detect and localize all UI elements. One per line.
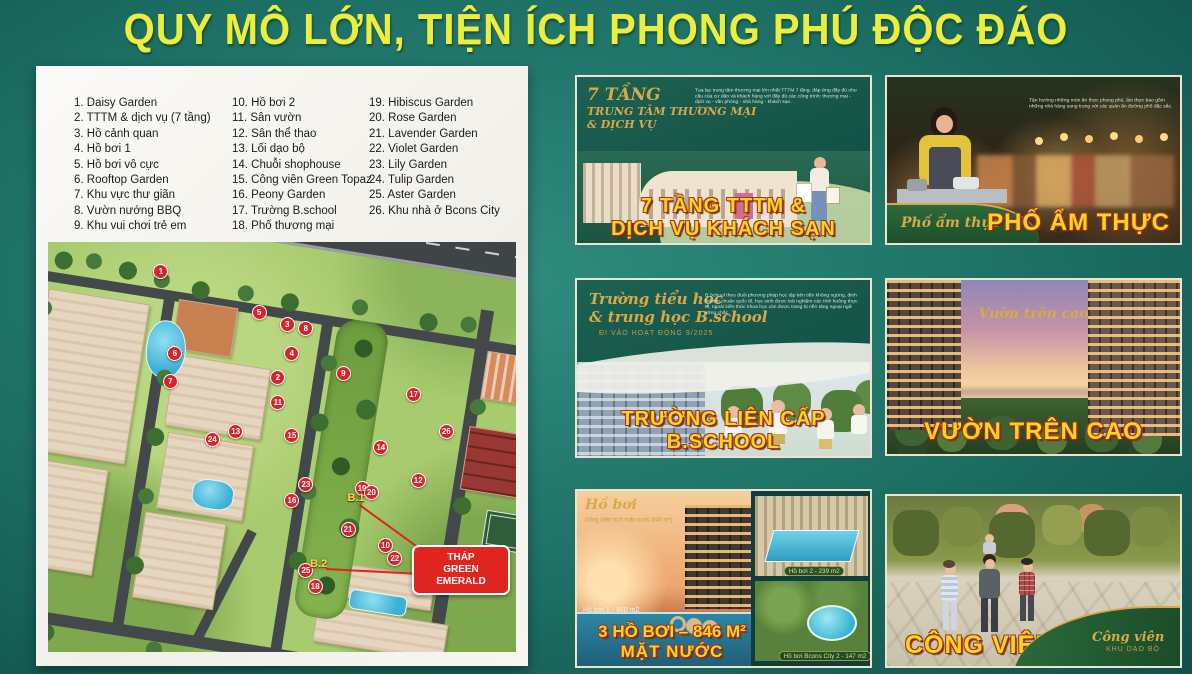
bcons-pool-water [807, 605, 857, 641]
legend-item: 6. Rooftop Garden [74, 173, 211, 188]
legend-item: 11. Sân vườn [232, 111, 372, 126]
masterplan-map: 1538647291113241517261412231920162110222… [48, 242, 516, 652]
left-tower [887, 280, 961, 430]
map-marker-13: 13 [228, 424, 243, 439]
tile-pho-am-thuc: Tận hưởng những món ăn thực phong phú, ẩ… [885, 75, 1182, 245]
label-line1: THÁP [447, 552, 474, 563]
tttm-caption-line1: 7 TẦNG TTTM & [577, 195, 870, 218]
legend-item: 22. Violet Garden [369, 142, 500, 157]
park-trees [887, 506, 897, 516]
map-marker-15: 15 [284, 428, 299, 443]
legend-item: 1. Daisy Garden [74, 96, 211, 111]
pool-caption: 3 HỒ BƠI – 846 M² MẶT NƯỚC [577, 622, 767, 662]
pool-main-photo: Hồ bơi (tổng diện tích mặt nước 846 m²) … [577, 491, 751, 666]
tttm-caption: 7 TẦNG TTTM & DỊCH VỤ KHÁCH SẠN [577, 195, 870, 241]
pool1-label: Hồ bơi 1 - 460 m2 [583, 607, 639, 614]
legend-item: 17. Trường B.school [232, 204, 372, 219]
tile-vuon-tren-cao: Vườn trên cao VƯỜN TRÊN CAO [885, 278, 1182, 456]
map-marker-2: 2 [270, 370, 285, 385]
marker-b1: B.1 [348, 492, 365, 504]
tile-ho-boi: Hồ bơi (tổng diện tích mặt nước 846 m²) … [575, 489, 872, 668]
legend-item: 24. Tulip Garden [369, 173, 500, 188]
green-emerald-label: THÁP GREEN EMERALD [412, 545, 510, 595]
legend-item: 14. Chuỗi shophouse [232, 158, 372, 173]
tile-bschool: Trường tiểu học & trung học B.school ĐI … [575, 278, 872, 458]
bschool-caption-line1: TRƯỜNG LIÊN CẤP [577, 408, 870, 431]
map-marker-8: 8 [298, 321, 313, 336]
tile-tttm: 7 TẦNG TRUNG TÂM THƯƠNG MẠI & DỊCH VỤ Tọ… [575, 75, 872, 245]
map-marker-6: 6 [167, 346, 182, 361]
bschool-paragraph-wrap: B.School theo đuổi phương pháp học tập t… [705, 292, 865, 334]
pool-sub-photo-1: Hồ bơi 2 - 239 m2 [755, 496, 868, 576]
map-marker-4: 4 [284, 346, 299, 361]
bcons-pool-label: Hồ bơi Bcons City 2 - 147 m2 [779, 651, 871, 661]
park-ribbon-line1: Công viên [1092, 630, 1182, 645]
park-ribbon-line2: KHU DẠO BỘ [1106, 646, 1182, 653]
bschool-caption-line2: B.SCHOOL [577, 431, 870, 454]
tttm-caption-line2: DỊCH VỤ KHÁCH SẠN [577, 218, 870, 241]
bschool-caption: TRƯỜNG LIÊN CẤP B.SCHOOL [577, 408, 870, 454]
tttm-paragraph: Tọa lạc trung tâm thương mại lớn nhất TT… [695, 87, 860, 104]
map-marker-23: 23 [298, 477, 313, 492]
marker-b2: B.2 [310, 558, 327, 570]
tttm-photo: 7 TẦNG TTTM & DỊCH VỤ KHÁCH SẠN [577, 151, 870, 243]
pool2-label: Hồ bơi 2 - 239 m2 [784, 566, 845, 576]
legend-item: 26. Khu nhà ở Bcons City [369, 204, 500, 219]
pool-header: Hồ bơi [585, 497, 637, 513]
legend-item: 5. Hồ bơi vô cực [74, 158, 211, 173]
legend-column-2: 10. Hồ bơi 211. Sân vườn12. Sân thể thao… [232, 96, 372, 235]
string-lights [887, 77, 891, 81]
legend-item: 3. Hồ cảnh quan [74, 127, 211, 142]
tile-cong-vien: CÔNG VIÊN Công viên KHU DẠO BỘ [885, 494, 1182, 668]
legend-column-3: 19. Hibiscus Garden20. Rose Garden21. La… [369, 96, 500, 219]
map-marker-12: 12 [411, 473, 426, 488]
legend-item: 18. Phố thương mại [232, 219, 372, 234]
legend-item: 8. Vườn nướng BBQ [74, 204, 211, 219]
legend-item: 9. Khu vui chơi trẻ em [74, 219, 211, 234]
map-marker-26: 26 [439, 424, 454, 439]
right-tower [1088, 280, 1180, 436]
legend-item: 12. Sân thể thao [232, 127, 372, 142]
map-marker-11: 11 [270, 395, 285, 410]
legend-item: 10. Hồ bơi 2 [232, 96, 372, 111]
foodstreet-paragraph-wrap: Tận hưởng những món ăn thực phong phú, ẩ… [1029, 97, 1175, 118]
map-marker-7: 7 [163, 374, 178, 389]
pool-caption-line2: MẶT NƯỚC [577, 642, 767, 662]
map-marker-21: 21 [341, 522, 356, 537]
legend-item: 20. Rose Garden [369, 111, 500, 126]
legend-item: 7. Khu vực thư giãn [74, 188, 211, 203]
bschool-paragraph: B.School theo đuổi phương pháp học tập t… [705, 292, 865, 315]
legend-item: 16. Peony Garden [232, 188, 372, 203]
map-marker-1: 1 [153, 264, 168, 279]
legend-item: 13. Lối dạo bộ [232, 142, 372, 157]
legend-item: 2. TTTM & dịch vụ (7 tầng) [74, 111, 211, 126]
tttm-header-line3: & DỊCH VỤ [587, 118, 756, 131]
map-marker-20: 20 [364, 485, 379, 500]
map-marker-3: 3 [280, 317, 295, 332]
masterplan-panel: 1. Daisy Garden2. TTTM & dịch vụ (7 tầng… [36, 66, 528, 666]
page-title: QUY MÔ LỚN, TIỆN ÍCH PHONG PHÚ ĐỘC ĐÁO [0, 6, 1192, 55]
legend-item: 23. Lily Garden [369, 158, 500, 173]
horizon-city [957, 388, 1090, 396]
legend-item: 25. Aster Garden [369, 188, 500, 203]
legend-item: 19. Hibiscus Garden [369, 96, 500, 111]
map-marker-24: 24 [205, 432, 220, 447]
legend-column-1: 1. Daisy Garden2. TTTM & dịch vụ (7 tầng… [74, 96, 211, 235]
map-marker-22: 22 [387, 551, 402, 566]
pool2-water [764, 530, 859, 562]
map-marker-14: 14 [373, 440, 388, 455]
foodstreet-caption: PHỐ ẨM THỰC [987, 209, 1170, 237]
pool-sub-photo-2: Hồ bơi Bcons City 2 - 147 m2 [755, 581, 868, 661]
map-marker-17: 17 [406, 387, 421, 402]
skygarden-caption: VƯỜN TRÊN CAO [887, 418, 1180, 446]
map-marker-16: 16 [284, 493, 299, 508]
legend-item: 15. Công viên Green Topaz [232, 173, 372, 188]
legend-item: 21. Lavender Garden [369, 127, 500, 142]
map-marker-9: 9 [336, 366, 351, 381]
pool-tower-silhouette [685, 505, 751, 609]
pool-caption-line1: 3 HỒ BƠI – 846 M² [577, 622, 767, 642]
tttm-paragraph-wrap: Tọa lạc trung tâm thương mại lớn nhất TT… [695, 87, 863, 119]
legend-item: 4. Hồ bơi 1 [74, 142, 211, 157]
pool-header-sub: (tổng diện tích mặt nước 846 m²) [585, 517, 672, 523]
label-line2: GREEN EMERALD [436, 564, 485, 587]
map-marker-18: 18 [308, 579, 323, 594]
skygarden-script: Vườn trên cao [887, 306, 1180, 322]
map-marker-5: 5 [252, 305, 267, 320]
foodstreet-paragraph: Tận hưởng những món ăn thực phong phú, ẩ… [1029, 97, 1173, 109]
